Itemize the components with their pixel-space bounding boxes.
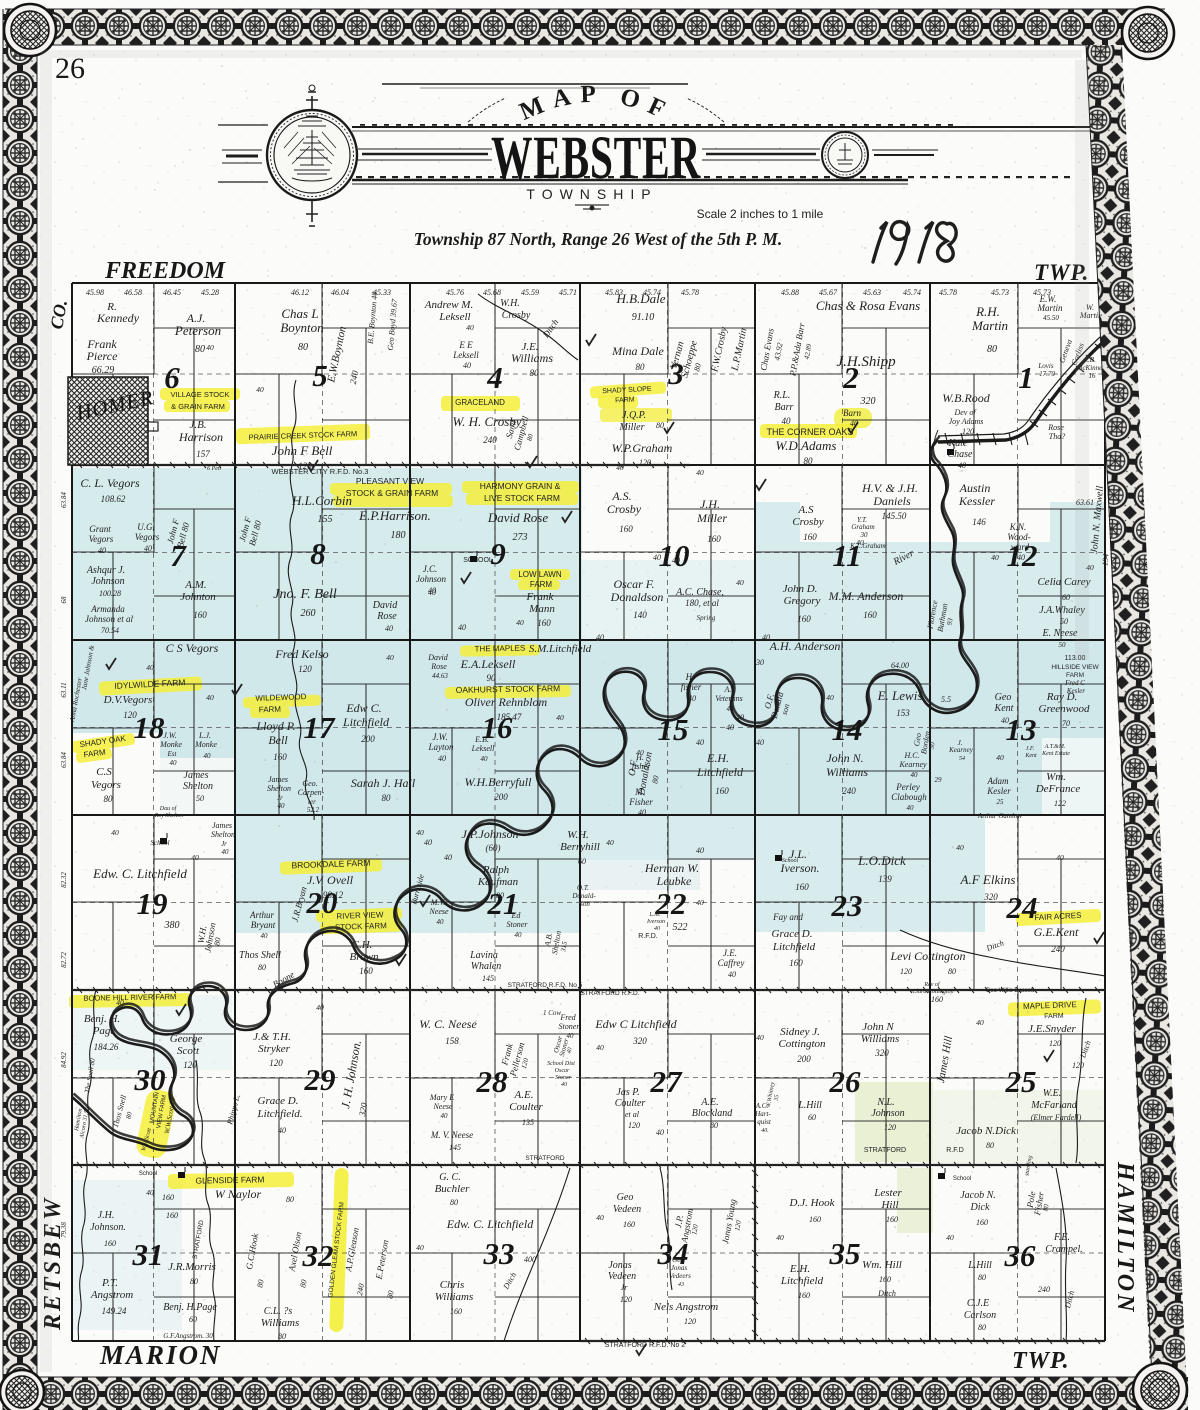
svg-text:C.S: C.S (96, 766, 112, 778)
svg-text:17.70: 17.70 (1039, 370, 1055, 378)
svg-text:46.45: 46.45 (163, 288, 181, 297)
svg-text:Jacob N.Dick: Jacob N.Dick (956, 1125, 1017, 1137)
svg-text:Fred Kelso: Fred Kelso (274, 647, 328, 661)
svg-text:40: 40 (386, 653, 394, 662)
svg-text:R.F.D: R.F.D (946, 1147, 964, 1154)
svg-text:160: 160 (798, 1291, 810, 1300)
svg-text:Oscar F.: Oscar F. (613, 577, 654, 591)
svg-text:33: 33 (483, 1236, 515, 1271)
svg-text:Johnton: Johnton (180, 591, 216, 603)
svg-text:200: 200 (797, 1054, 811, 1064)
svg-text:STRATFORD R.F.D. No 5: STRATFORD R.F.D. No 5 (508, 982, 583, 989)
svg-text:6 Pen: 6 Pen (207, 466, 221, 472)
svg-text:A.: A. (724, 685, 732, 694)
svg-text:80: 80 (986, 1141, 994, 1150)
svg-text:David: David (372, 600, 398, 611)
svg-text:23: 23 (831, 888, 863, 923)
svg-text:120: 120 (269, 1058, 283, 1068)
svg-text:Bryant: Bryant (251, 920, 276, 930)
svg-text:160: 160 (104, 1239, 116, 1248)
svg-text:45.50: 45.50 (1043, 314, 1059, 322)
svg-text:Donald-: Donald- (571, 892, 596, 900)
svg-text:Blockland: Blockland (692, 1108, 734, 1119)
svg-text:160: 160 (803, 532, 817, 542)
svg-text:29: 29 (304, 1062, 336, 1097)
svg-text:82.72: 82.72 (60, 952, 68, 968)
svg-text:C S Vegors: C S Vegors (166, 641, 219, 655)
svg-text:80: 80 (650, 775, 660, 784)
svg-text:Stryker: Stryker (258, 1043, 290, 1055)
svg-text:54: 54 (959, 755, 965, 762)
svg-text:40: 40 (638, 808, 646, 817)
svg-text:LOW LAWN: LOW LAWN (518, 570, 561, 579)
svg-text:E.P.Harrison.: E.P.Harrison. (358, 508, 431, 523)
svg-text:21: 21 (487, 886, 519, 921)
svg-text:70.54: 70.54 (101, 626, 119, 635)
svg-text:45.76: 45.76 (446, 288, 464, 297)
svg-text:29: 29 (935, 776, 943, 784)
svg-text:200: 200 (361, 734, 375, 744)
svg-text:Scott: Scott (177, 1045, 200, 1057)
svg-text:40: 40 (911, 771, 919, 779)
svg-text:40: 40 (438, 754, 446, 763)
svg-text:40: 40 (1056, 853, 1064, 862)
svg-text:Stoner: Stoner (559, 1022, 581, 1031)
svg-text:120: 120 (684, 1317, 696, 1326)
svg-text:Martin: Martin (971, 318, 1008, 333)
svg-text:153: 153 (896, 708, 910, 718)
svg-text:80: 80 (530, 368, 540, 378)
svg-text:145.50: 145.50 (882, 511, 907, 521)
svg-text:80: 80 (255, 1279, 265, 1288)
svg-text:Chas & Rosa Evans: Chas & Rosa Evans (816, 298, 920, 313)
svg-text:40: 40 (567, 1032, 575, 1040)
svg-text:45.73: 45.73 (991, 288, 1009, 297)
svg-text:& GRAIN FARM: & GRAIN FARM (171, 402, 225, 411)
svg-text:19: 19 (137, 886, 168, 921)
svg-text:160: 160 (623, 1220, 635, 1229)
svg-text:Vegors: Vegors (135, 532, 160, 542)
svg-text:40: 40 (696, 738, 704, 747)
svg-text:40: 40 (204, 752, 212, 760)
svg-text:160: 160 (797, 614, 811, 624)
svg-text:45.88: 45.88 (781, 288, 799, 297)
svg-text:Vegors: Vegors (91, 779, 121, 791)
svg-text:40: 40 (278, 802, 286, 810)
svg-text:20: 20 (306, 885, 338, 920)
svg-text:27: 27 (650, 1064, 684, 1099)
svg-text:32: 32 (302, 1238, 334, 1273)
svg-text:40: 40 (726, 723, 734, 732)
svg-text:160: 160 (166, 1211, 178, 1220)
svg-text:40: 40 (596, 1043, 604, 1052)
svg-text:Brown: Brown (350, 951, 379, 963)
svg-text:158: 158 (445, 1036, 459, 1046)
svg-text:45.78: 45.78 (939, 288, 957, 297)
svg-text:25: 25 (1005, 1064, 1037, 1099)
svg-text:McFarland: McFarland (1030, 1100, 1078, 1111)
svg-text:40: 40 (956, 843, 964, 852)
svg-text:H.V. & J.H.: H.V. & J.H. (861, 481, 918, 495)
svg-text:Chris: Chris (440, 1279, 464, 1291)
svg-text:40: 40 (996, 753, 1004, 762)
svg-text:80: 80 (978, 1273, 986, 1282)
svg-text:Perley: Perley (895, 782, 919, 792)
svg-text:Wm.: Wm. (1046, 771, 1066, 783)
svg-text:Williams: Williams (261, 1317, 300, 1329)
svg-text:Johnson et al: Johnson et al (85, 614, 133, 624)
svg-text:Leksell: Leksell (452, 350, 479, 360)
svg-text:46.12: 46.12 (291, 288, 309, 297)
svg-text:30: 30 (755, 658, 764, 667)
svg-text:Armanda: Armanda (90, 604, 125, 614)
svg-text:Wm. Hill: Wm. Hill (862, 1259, 902, 1271)
svg-text:Barn: Barn (843, 408, 862, 418)
svg-text:Johnson: Johnson (416, 574, 446, 584)
svg-text:17: 17 (304, 710, 337, 745)
svg-text:35: 35 (773, 1094, 780, 1102)
svg-text:FARM: FARM (615, 396, 635, 404)
svg-text:40: 40 (756, 1033, 764, 1042)
svg-text:50: 50 (1060, 617, 1068, 626)
svg-text:Veterans: Veterans (715, 694, 743, 703)
svg-text:ter: ter (308, 798, 316, 806)
svg-text:40: 40 (696, 898, 704, 907)
svg-text:Township 87 North, Range 26 We: Township 87 North, Range 26 West of the … (414, 229, 782, 249)
svg-text:Dev of: Dev of (953, 408, 977, 417)
svg-text:Mann: Mann (528, 603, 555, 615)
svg-text:School Dist: School Dist (547, 1061, 575, 1067)
svg-text:J.W.: J.W. (163, 731, 177, 740)
svg-text:Geo: Geo (617, 1192, 634, 1203)
svg-text:E. Neese: E. Neese (1042, 628, 1079, 639)
svg-text:Vedeen: Vedeen (613, 1204, 641, 1215)
svg-text:40: 40 (98, 546, 106, 555)
svg-text:A.S.: A.S. (611, 489, 631, 503)
svg-text:M.M. Anderson: M.M. Anderson (828, 589, 904, 603)
svg-text:Est: Est (167, 750, 178, 758)
svg-text:Adam: Adam (987, 776, 1009, 786)
svg-text:45.68: 45.68 (483, 288, 501, 297)
svg-text:80: 80 (710, 1121, 718, 1130)
svg-text:Buchler: Buchler (435, 1183, 471, 1195)
svg-text:120: 120 (962, 427, 974, 436)
svg-text:180: 180 (391, 530, 406, 541)
svg-text:STOCK & GRAIN FARM: STOCK & GRAIN FARM (346, 488, 438, 498)
svg-text:Bell: Bell (268, 733, 288, 747)
svg-text:J.W.: J.W. (432, 732, 447, 742)
svg-text:James: James (212, 821, 232, 830)
svg-text:Spring: Spring (697, 614, 716, 622)
svg-text:60: 60 (578, 857, 586, 866)
svg-text:Page: Page (92, 1025, 116, 1037)
svg-text:U.G.: U.G. (137, 522, 155, 532)
svg-text:Litchfield: Litchfield (342, 715, 390, 729)
svg-text:Chas L: Chas L (281, 306, 318, 321)
svg-text:16: 16 (482, 710, 514, 745)
svg-text:Vedeen: Vedeen (608, 1271, 636, 1282)
svg-text:John D.: John D. (783, 583, 818, 595)
svg-text:STOCK FARM: STOCK FARM (335, 921, 387, 932)
svg-text:34: 34 (657, 1236, 689, 1271)
svg-text:84.92: 84.92 (60, 1052, 68, 1068)
svg-text:120: 120 (1072, 1061, 1084, 1070)
svg-text:40: 40 (596, 633, 604, 642)
svg-text:Lloyd P.: Lloyd P. (255, 719, 295, 733)
svg-text:Geo: Geo (995, 692, 1012, 703)
svg-text:4: 4 (486, 360, 503, 395)
svg-text:Edw C.: Edw C. (345, 701, 381, 715)
svg-text:Fisher: Fisher (628, 797, 653, 807)
svg-text:Grace D.: Grace D. (258, 1095, 299, 1107)
svg-text:A.T.&M.: A.T.&M. (1044, 744, 1066, 750)
svg-text:Jno. F. Bell: Jno. F. Bell (273, 587, 337, 602)
svg-text:160: 160 (359, 966, 373, 976)
svg-text:L.Hill: L.Hill (797, 1100, 822, 1111)
svg-text:160: 160 (809, 1215, 821, 1224)
svg-text:Scale 2 inches to 1 mile: Scale 2 inches to 1 mile (697, 207, 824, 221)
svg-text:fisher: fisher (681, 682, 702, 692)
svg-text:40: 40 (385, 624, 393, 633)
svg-text:108.62: 108.62 (101, 494, 126, 504)
svg-text:40: 40 (146, 663, 154, 672)
svg-text:40: 40 (256, 385, 264, 394)
svg-text:Kesler: Kesler (1066, 687, 1086, 695)
svg-text:Neese: Neese (432, 1102, 453, 1111)
svg-text:E.A.Leksell: E.A.Leksell (460, 657, 516, 671)
svg-text:40: 40 (654, 925, 660, 932)
svg-text:D.J. Hook: D.J. Hook (789, 1197, 836, 1209)
svg-text:Levi Cottington: Levi Cottington (890, 949, 966, 963)
svg-text:OAKHURST STOCK FARM: OAKHURST STOCK FARM (456, 683, 561, 695)
svg-text:Cottington: Cottington (778, 1038, 826, 1050)
svg-text:Ashqur J.: Ashqur J. (86, 565, 125, 576)
svg-text:68: 68 (60, 596, 68, 604)
svg-text:Neese: Neese (428, 907, 449, 916)
svg-text:Lester: Lester (873, 1187, 902, 1199)
svg-text:155: 155 (318, 514, 333, 525)
svg-text:140: 140 (633, 610, 647, 620)
svg-text:60: 60 (189, 1315, 197, 1324)
svg-text:WILDEWOOD: WILDEWOOD (255, 692, 307, 703)
svg-text:Whalen: Whalen (471, 961, 502, 972)
svg-text:F.E.: F.E. (1053, 1232, 1070, 1243)
svg-text:40: 40 (146, 1188, 154, 1197)
svg-text:K.N.: K.N. (1009, 522, 1027, 532)
svg-text:Angstrom: Angstrom (90, 1289, 133, 1301)
svg-text:120: 120 (298, 664, 312, 674)
svg-text:Kent Estate: Kent Estate (1041, 751, 1070, 757)
svg-text:40: 40 (688, 694, 696, 703)
svg-text:120: 120 (900, 967, 912, 976)
svg-text:STRATFORD R.F.D.: STRATFORD R.F.D. (580, 990, 639, 997)
svg-text:Jacob N.: Jacob N. (960, 1190, 996, 1201)
svg-text:28: 28 (476, 1064, 509, 1099)
svg-text:40: 40 (111, 828, 119, 837)
svg-text:Edw. C. Litchfield: Edw. C. Litchfield (446, 1217, 534, 1231)
svg-text:O.T.: O.T. (577, 884, 589, 892)
svg-text:W.E.: W.E. (1043, 1088, 1062, 1099)
svg-text:Johnson: Johnson (91, 576, 124, 587)
svg-text:160: 160 (931, 995, 943, 1004)
svg-text:25: 25 (997, 798, 1005, 806)
svg-text:45.83: 45.83 (605, 288, 623, 297)
svg-text:80: 80 (450, 1198, 458, 1207)
svg-text:80: 80 (948, 967, 956, 976)
svg-text:W.H.Berryfull: W.H.Berryfull (465, 775, 533, 789)
svg-text:Litchfield: Litchfield (780, 1275, 824, 1287)
svg-text:W.H.: W.H. (567, 829, 589, 841)
svg-text:40: 40 (991, 553, 999, 562)
svg-text:40: 40 (907, 804, 915, 812)
svg-text:40: 40 (428, 588, 436, 597)
svg-text:240: 240 (1038, 1285, 1050, 1294)
svg-text:40: 40 (696, 846, 704, 855)
svg-text:50: 50 (1059, 641, 1067, 649)
svg-text:15: 15 (658, 712, 689, 747)
svg-text:E E: E E (458, 340, 473, 350)
svg-text:Rose: Rose (430, 662, 447, 671)
svg-text:Edw C Litchfield: Edw C Litchfield (594, 1017, 677, 1031)
svg-text:John N: John N (862, 1021, 894, 1033)
svg-text:46.58: 46.58 (124, 288, 142, 297)
svg-text:40: 40 (728, 970, 736, 979)
svg-text:80: 80 (382, 793, 392, 803)
svg-text:40: 40 (463, 361, 471, 370)
svg-text:Vedeers: Vedeers (669, 1272, 691, 1280)
svg-text:Edw. C. Litchfield: Edw. C. Litchfield (92, 866, 187, 881)
svg-text:90: 90 (487, 673, 497, 683)
svg-text:W.H.: W.H. (500, 298, 520, 309)
svg-text:120: 120 (620, 1295, 632, 1304)
svg-text:Mary E: Mary E (429, 1093, 454, 1102)
svg-text:80: 80 (656, 421, 664, 430)
svg-text:Shelton: Shelton (183, 781, 213, 792)
svg-text:45.71: 45.71 (559, 288, 577, 297)
svg-text:A.M.: A.M. (184, 579, 206, 591)
svg-text:W. C. Neese: W. C. Neese (419, 1017, 477, 1031)
svg-text:C.L. ?s: C.L. ?s (264, 1306, 293, 1317)
svg-text:H.C.: H.C. (903, 751, 919, 760)
svg-text:160: 160 (273, 752, 287, 762)
svg-text:Ditch: Ditch (877, 1289, 896, 1298)
svg-text:240: 240 (842, 786, 856, 796)
svg-text:Tha?: Tha? (1049, 432, 1065, 441)
svg-text:LIVE STOCK FARM: LIVE STOCK FARM (484, 493, 560, 503)
svg-text:Herman W.: Herman W. (644, 861, 699, 875)
svg-text:E.H.: E.H. (789, 1263, 810, 1275)
svg-text:36: 36 (1004, 1238, 1037, 1273)
svg-text:C.J.E: C.J.E (967, 1298, 989, 1309)
svg-text:160: 160 (886, 1215, 898, 1224)
svg-text:WEBSTER CITY R.F.D. No.3: WEBSTER CITY R.F.D. No.3 (272, 467, 369, 476)
svg-text:A.E.: A.E. (514, 1089, 534, 1101)
svg-text:Lavina: Lavina (469, 950, 498, 961)
svg-text:Dau of: Dau of (159, 805, 178, 812)
svg-text:80: 80 (278, 1332, 286, 1341)
svg-text:40: 40 (696, 468, 704, 477)
svg-text:Litchfield: Litchfield (696, 765, 744, 779)
svg-text:Jr: Jr (277, 794, 283, 802)
svg-text:Crosby: Crosby (607, 502, 642, 516)
svg-text:L.Hill: L.Hill (967, 1260, 992, 1271)
svg-text:A.C. Chase,: A.C. Chase, (675, 587, 724, 598)
svg-text:63.11: 63.11 (60, 682, 68, 697)
svg-text:184.26: 184.26 (94, 1042, 119, 1052)
svg-text:Johnson: Johnson (871, 1108, 904, 1119)
svg-text:66.29: 66.29 (92, 365, 115, 376)
svg-text:10: 10 (659, 538, 690, 573)
svg-text:120: 120 (639, 458, 651, 467)
svg-text:quist: quist (757, 1118, 772, 1126)
svg-text:Rev of: Rev of (923, 981, 940, 988)
svg-text:145: 145 (482, 974, 494, 983)
svg-text:80: 80 (258, 963, 266, 972)
svg-text:G.F.Angstrom. 30: G.F.Angstrom. 30 (163, 1332, 213, 1340)
svg-text:Sarah J. Hall: Sarah J. Hall (351, 776, 416, 790)
svg-text:400: 400 (524, 1255, 536, 1264)
svg-text:80: 80 (190, 1277, 198, 1286)
svg-text:40: 40 (776, 1233, 784, 1242)
svg-text:G. C.: G. C. (439, 1172, 460, 1183)
svg-text:Caffrey: Caffrey (718, 958, 745, 968)
svg-text:School: School (139, 1171, 157, 1177)
svg-text:Rose: Rose (376, 611, 397, 622)
svg-text:H.L.Corbin: H.L.Corbin (291, 493, 352, 508)
svg-text:5.5: 5.5 (941, 695, 951, 704)
svg-text:J.H.: J.H. (98, 1210, 115, 1221)
svg-text:Greenwood: Greenwood (1039, 703, 1090, 715)
svg-text:R.H.: R.H. (975, 304, 1000, 319)
svg-text:64.00: 64.00 (891, 661, 909, 670)
svg-text:40: 40 (444, 853, 452, 862)
svg-text:FARM: FARM (1066, 672, 1084, 679)
svg-text:STRATFORD: STRATFORD (864, 1147, 906, 1154)
svg-text:Shelton: Shelton (267, 784, 291, 793)
svg-text:180, et al: 180, et al (685, 598, 719, 608)
svg-text:320: 320 (860, 396, 876, 407)
svg-text:Crosby: Crosby (502, 310, 531, 321)
svg-text:24: 24 (1006, 890, 1038, 925)
svg-text:A.F Elkins: A.F Elkins (960, 872, 1016, 887)
svg-text:40: 40 (516, 618, 524, 627)
svg-text:(60): (60) (486, 843, 501, 853)
svg-text:146: 146 (972, 517, 986, 527)
svg-text:Clabough: Clabough (891, 792, 927, 802)
svg-text:J.R.Morris: J.R.Morris (168, 1261, 216, 1273)
svg-text:Oliver Rehnblom: Oliver Rehnblom (465, 695, 548, 709)
svg-text:Donaldson: Donaldson (610, 590, 664, 604)
svg-text:40: 40 (736, 578, 744, 587)
svg-text:Coulter: Coulter (615, 1098, 646, 1109)
svg-text:40: 40 (206, 693, 214, 702)
svg-text:100.28: 100.28 (99, 589, 121, 598)
svg-text:School: School (953, 1176, 971, 1182)
svg-text:Crosby: Crosby (792, 516, 823, 528)
svg-text:30: 30 (134, 1062, 166, 1097)
svg-text:240: 240 (483, 435, 497, 445)
svg-text:40: 40 (316, 1003, 324, 1012)
svg-text:5: 5 (312, 358, 328, 393)
svg-text:C.H.: C.H. (352, 939, 373, 951)
svg-text:14: 14 (832, 712, 863, 747)
svg-text:80: 80 (212, 937, 222, 946)
svg-text:M.V.: M.V. (430, 898, 446, 907)
svg-text:40: 40 (656, 1128, 664, 1137)
svg-text:160: 160 (863, 610, 877, 620)
svg-text:40: 40 (946, 1233, 954, 1242)
svg-text:40: 40 (424, 838, 432, 847)
